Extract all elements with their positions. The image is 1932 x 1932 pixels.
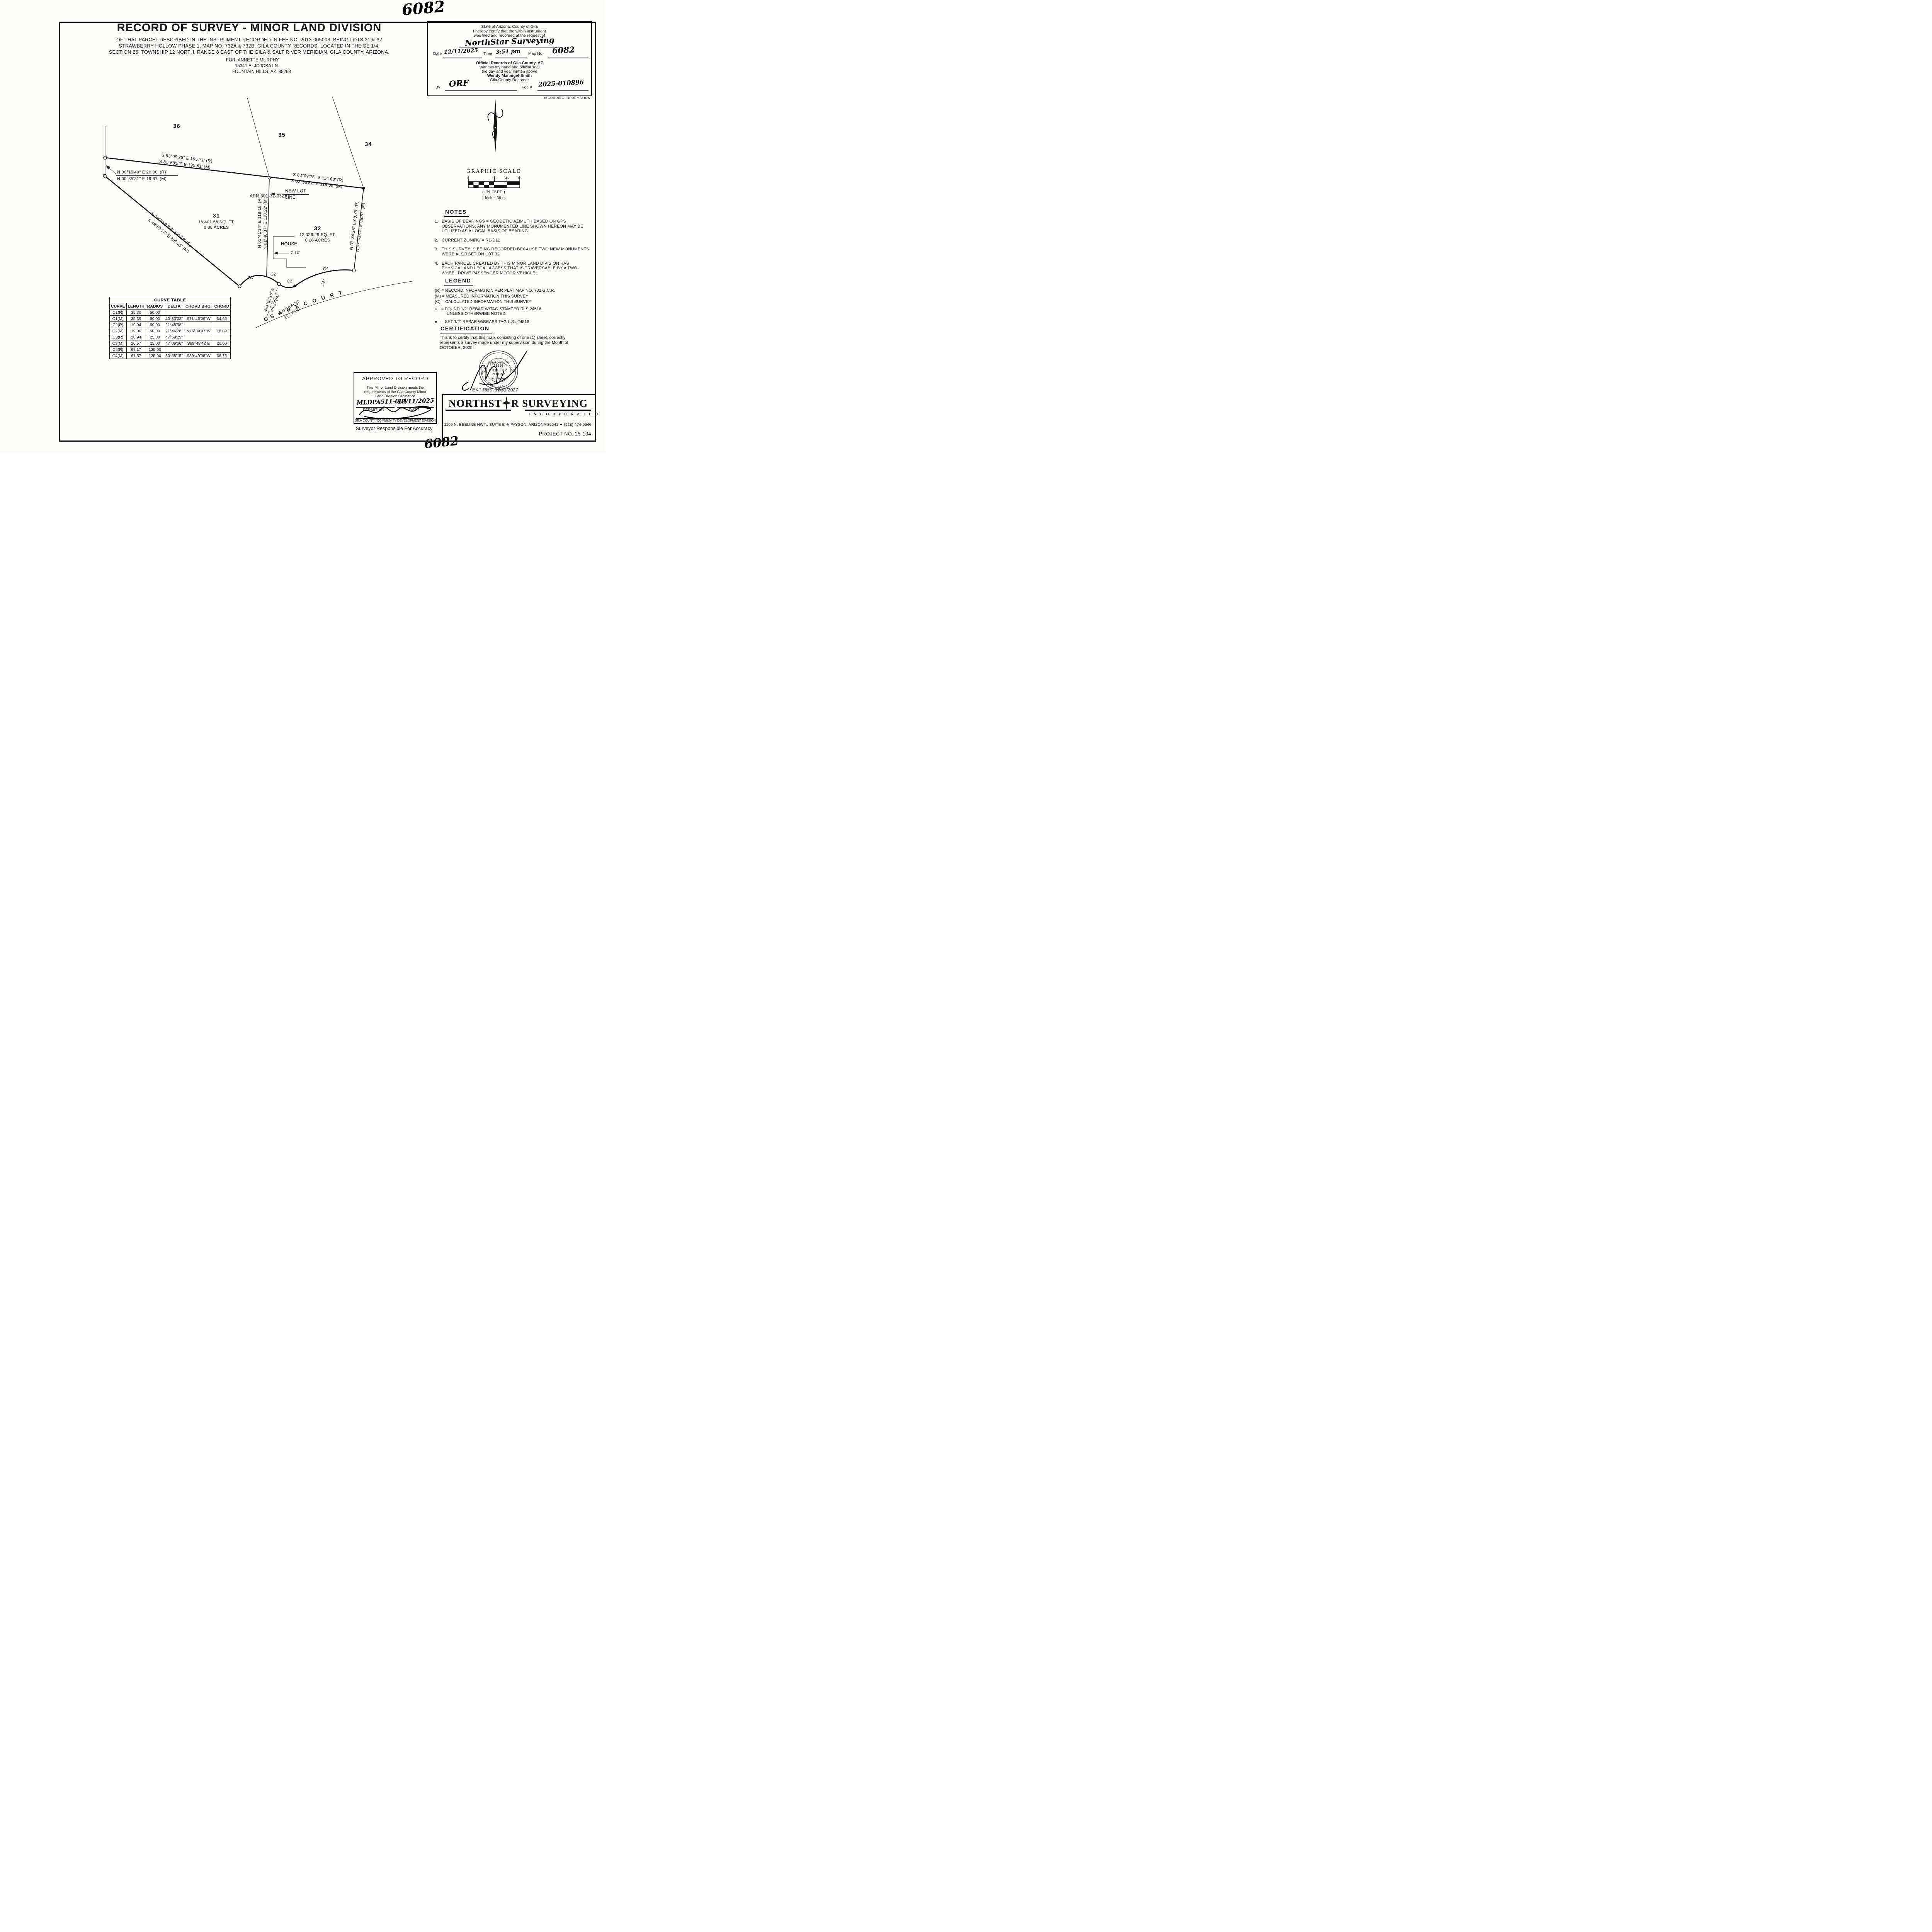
seal-cert-no-label: CERTIFICATE NO.	[488, 361, 509, 364]
curve-c1-line	[240, 276, 266, 286]
svg-text:REGISTERED LAND SURVEYOR: REGISTERED LAND SURVEYOR	[0, 0, 516, 375]
east-boundary-line	[354, 188, 364, 270]
house-offset-arrow	[274, 252, 289, 255]
section-line-35-34	[332, 97, 364, 188]
seal-name-1: STEPHEN R.	[489, 369, 508, 372]
found-monuments	[103, 156, 355, 321]
curve-c2-line	[266, 277, 279, 284]
new-lot-leader-arrow	[270, 192, 284, 196]
curve-c3-line	[279, 284, 295, 287]
survey-plat-sheet: 6082 6082 RECORD OF SURVEY - MINOR LAND …	[0, 0, 605, 453]
road-edge-line	[256, 281, 414, 328]
southwest-boundary-line	[105, 176, 240, 286]
curve-c4-line	[295, 270, 354, 286]
west-tie-leader-arrow	[106, 165, 116, 174]
section-line-36-35	[247, 98, 269, 178]
survey-drawing: S A G E C O U R T	[0, 0, 605, 453]
north-arrow-icon	[488, 99, 503, 153]
street-name-label: S A G E C O U R T	[269, 289, 345, 320]
new-lot-line	[267, 178, 269, 277]
approval-signature	[359, 406, 432, 419]
north-boundary-line	[105, 158, 364, 188]
svg-text:S A G E C O U R T: S A G E C O U R T	[269, 289, 345, 320]
seal-arc-top: REGISTERED LAND SURVEYOR	[0, 0, 516, 375]
graphic-scale-bar	[468, 176, 520, 188]
surveyor-seal: REGISTERED LAND SURVEYOR ARIZONA, U.S.A.…	[0, 0, 518, 389]
